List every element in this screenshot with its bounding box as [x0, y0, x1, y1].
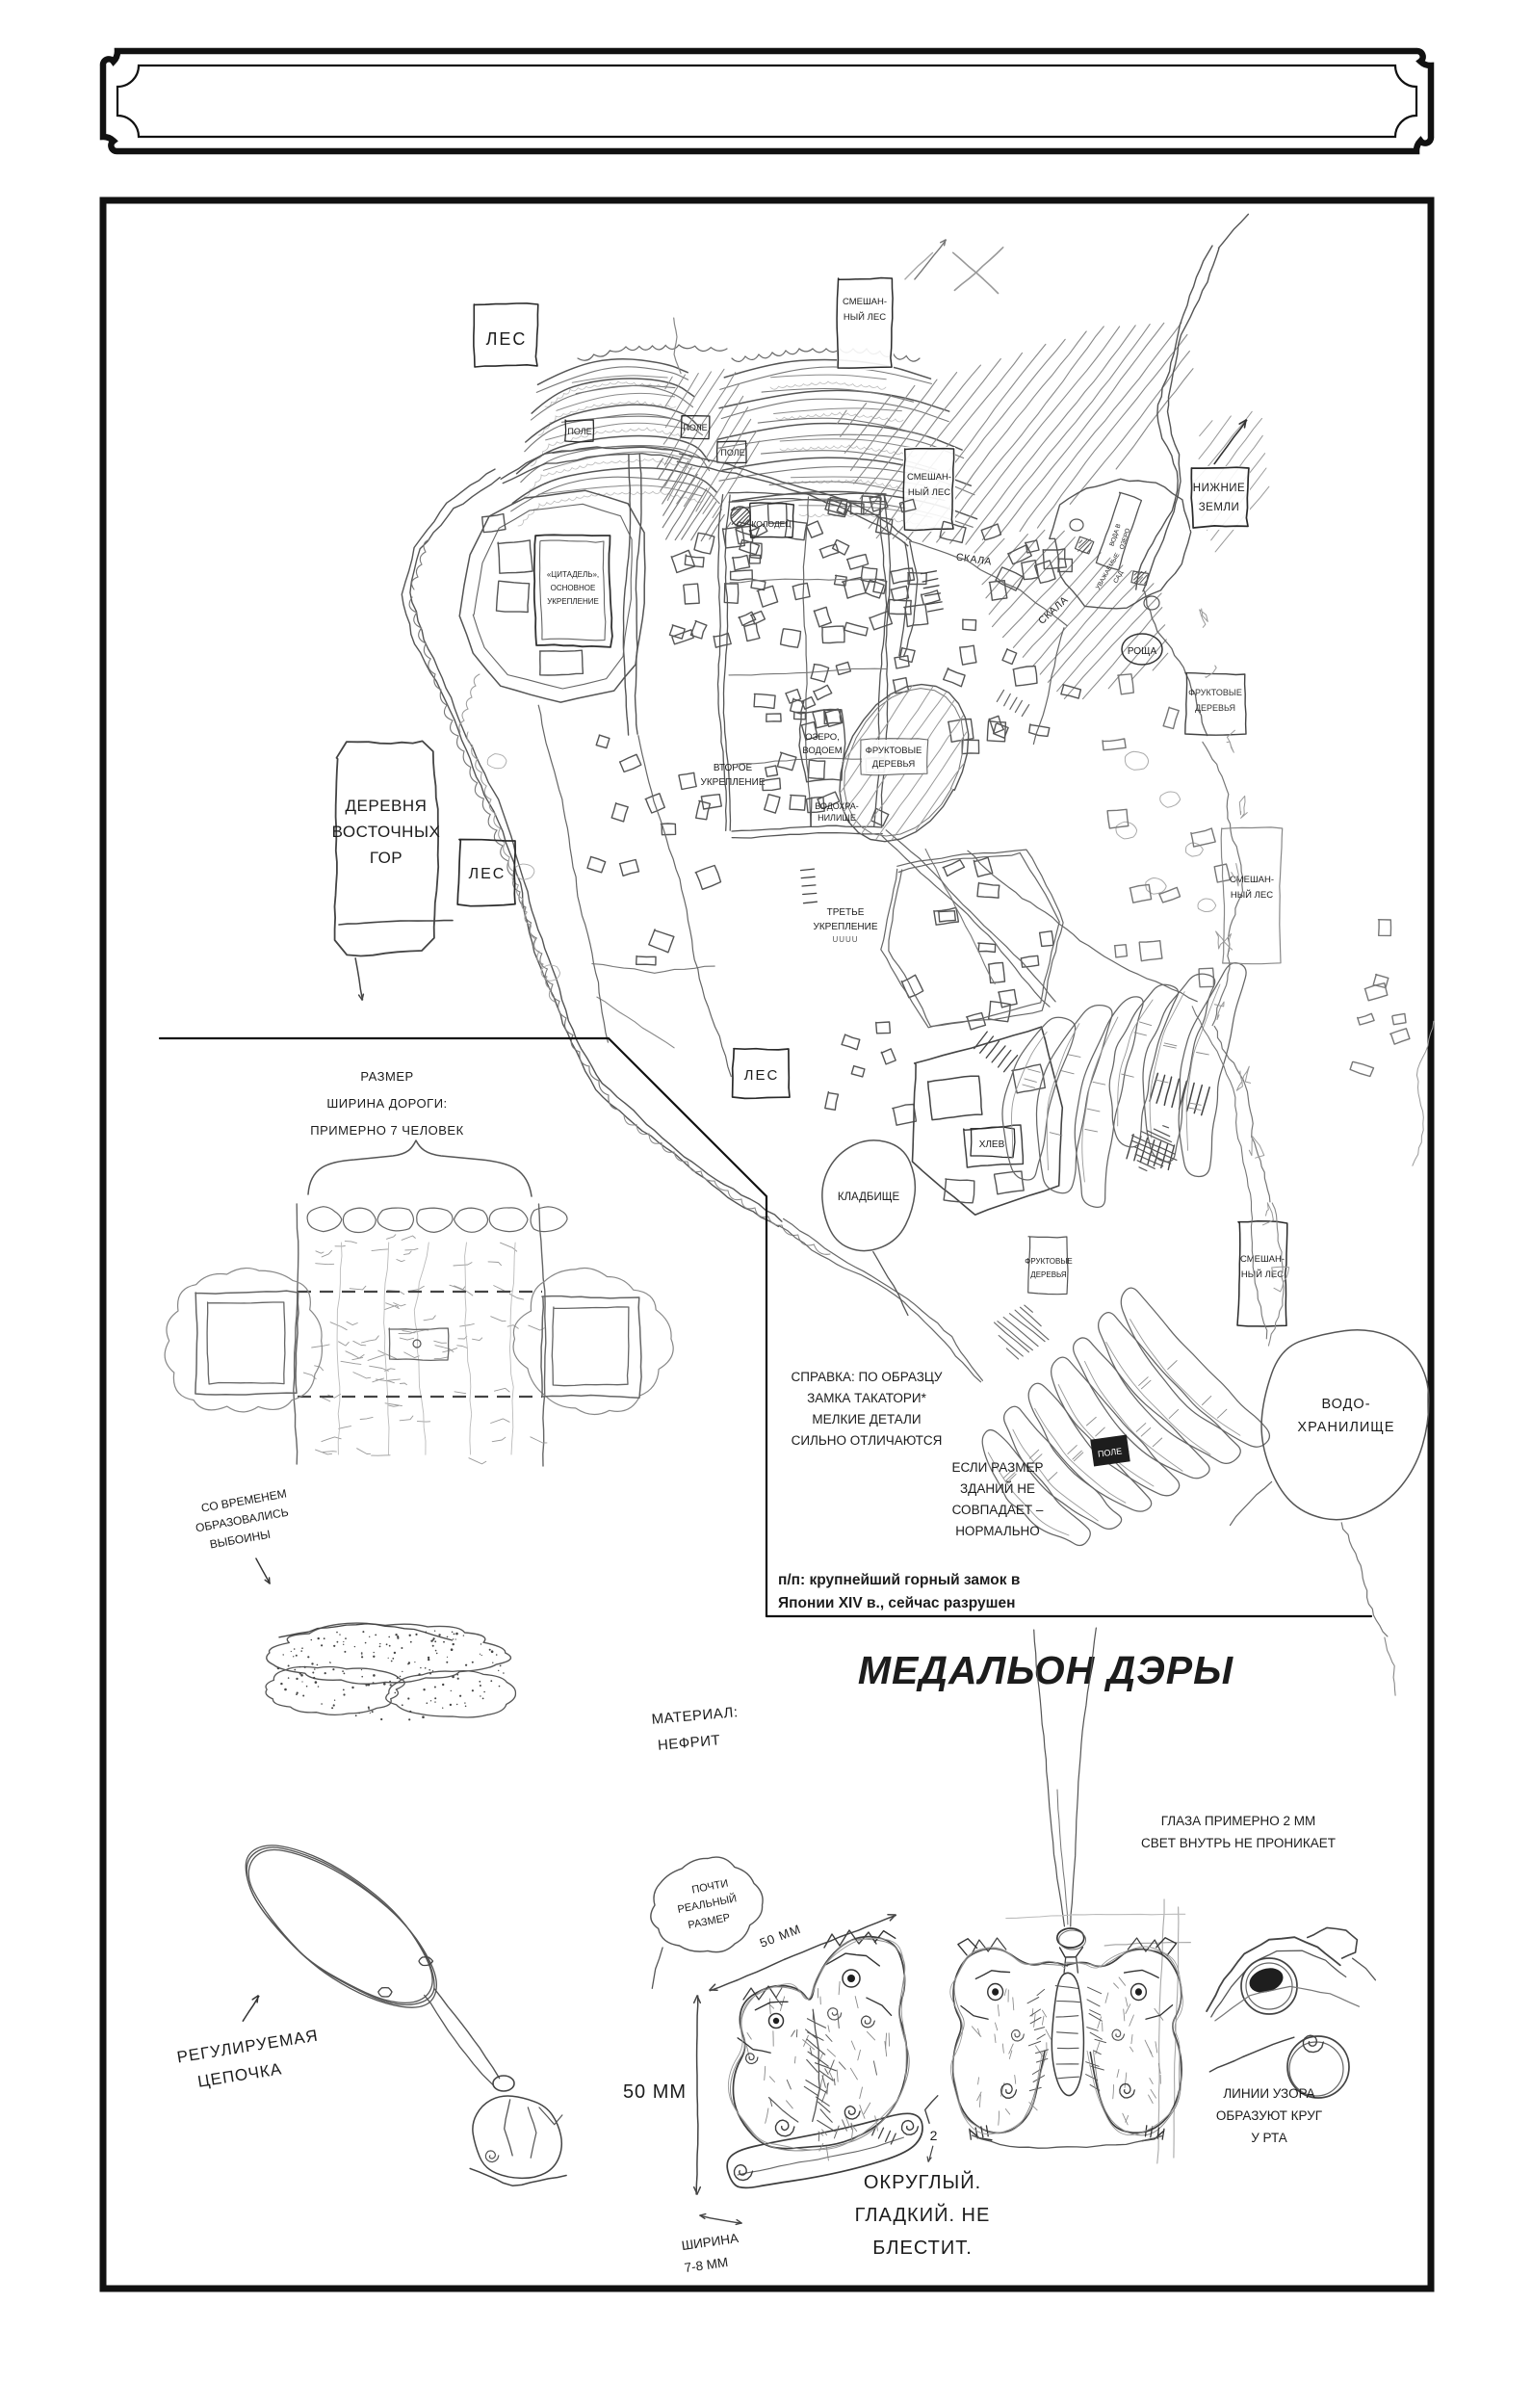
svg-text:КОЛОДЕЦ: КОЛОДЕЦ [751, 519, 792, 529]
svg-text:ШИРИНА ДОРОГИ:: ШИРИНА ДОРОГИ: [326, 1096, 447, 1111]
svg-text:СМЕШАН-: СМЕШАН- [907, 472, 951, 483]
svg-text:ПРИМЕРНО 7 ЧЕЛОВЕК: ПРИМЕРНО 7 ЧЕЛОВЕК [310, 1123, 463, 1138]
svg-text:ЗЕМЛИ: ЗЕМЛИ [1199, 502, 1240, 513]
svg-text:РОЩА: РОЩА [1128, 646, 1157, 657]
svg-text:НИЖНИЕ: НИЖНИЕ [1193, 483, 1245, 494]
svg-text:ДЕРЕВЬЯ: ДЕРЕВЬЯ [872, 759, 916, 770]
svg-text:ЛИНИИ УЗОРА: ЛИНИИ УЗОРА [1223, 2086, 1314, 2101]
svg-text:НЫЙ ЛЕС: НЫЙ ЛЕС [908, 486, 950, 498]
svg-text:ДЕРЕВЬЯ: ДЕРЕВЬЯ [1195, 703, 1235, 713]
svg-text:«ЦИТАДЕЛЬ»,: «ЦИТАДЕЛЬ», [547, 570, 599, 579]
svg-text:ПОЛЕ: ПОЛЕ [567, 427, 591, 436]
svg-text:РАЗМЕР: РАЗМЕР [360, 1069, 413, 1084]
svg-text:ФРУКТОВЫЕ: ФРУКТОВЫЕ [866, 746, 922, 756]
svg-text:ТРЕТЬЕ: ТРЕТЬЕ [827, 907, 865, 918]
svg-text:ГОР: ГОР [370, 849, 402, 867]
svg-text:ФРУКТОВЫЕ: ФРУКТОВЫЕ [1025, 1257, 1073, 1266]
svg-text:ПОЛЕ: ПОЛЕ [720, 448, 744, 458]
svg-text:ХРАНИЛИЩЕ: ХРАНИЛИЩЕ [1297, 1420, 1394, 1435]
svg-text:ДЕРЕВНЯ: ДЕРЕВНЯ [346, 797, 428, 815]
svg-text:ОЗЕРО,: ОЗЕРО, [805, 732, 840, 743]
svg-text:УКРЕПЛЕНИЕ: УКРЕПЛЕНИЕ [813, 922, 877, 932]
svg-text:СПРАВКА: ПО ОБРАЗЦУ: СПРАВКА: ПО ОБРАЗЦУ [792, 1370, 943, 1384]
svg-text:КЛАДБИЩЕ: КЛАДБИЩЕ [838, 1191, 900, 1203]
svg-text:СМЕШАН-: СМЕШАН- [843, 297, 887, 307]
svg-text:СВЕТ ВНУТРЬ НЕ ПРОНИКАЕТ: СВЕТ ВНУТРЬ НЕ ПРОНИКАЕТ [1141, 1836, 1336, 1850]
svg-text:У РТА: У РТА [1251, 2131, 1287, 2145]
svg-text:ХЛЕВ: ХЛЕВ [979, 1139, 1005, 1150]
svg-text:2: 2 [930, 2128, 939, 2143]
svg-text:УКРЕПЛЕНИЕ: УКРЕПЛЕНИЕ [700, 777, 765, 788]
svg-text:МЕДАЛЬОН ДЭРЫ: МЕДАЛЬОН ДЭРЫ [858, 1648, 1233, 1692]
svg-text:50 ММ: 50 ММ [623, 2081, 687, 2103]
svg-text:ВОСТОЧНЫХ: ВОСТОЧНЫХ [332, 823, 441, 841]
svg-text:ВОДОЕМ: ВОДОЕМ [802, 746, 842, 756]
svg-text:НЫЙ ЛЕС: НЫЙ ЛЕС [1241, 1269, 1284, 1280]
svg-text:ГЛАЗА ПРИМЕРНО 2 ММ: ГЛАЗА ПРИМЕРНО 2 ММ [1161, 1814, 1316, 1828]
svg-text:БЛЕСТИТ.: БЛЕСТИТ. [872, 2238, 973, 2259]
svg-text:СМЕШАН-: СМЕШАН- [1240, 1254, 1285, 1265]
svg-text:ЛЕС: ЛЕС [469, 866, 506, 882]
svg-text:ОСНОВНОЕ: ОСНОВНОЕ [551, 584, 596, 592]
svg-text:УКРЕПЛЕНИЕ: УКРЕПЛЕНИЕ [547, 597, 599, 606]
svg-text:UUUU: UUUU [832, 935, 858, 944]
svg-text:ЗДАНИЙ НЕ: ЗДАНИЙ НЕ [960, 1481, 1035, 1496]
svg-text:Японии XIV в., сейчас разрушен: Японии XIV в., сейчас разрушен [778, 1595, 1016, 1611]
svg-text:ЗАМКА ТАКАТОРИ*: ЗАМКА ТАКАТОРИ* [807, 1391, 926, 1405]
svg-text:п/п: крупнейший горный замок в: п/п: крупнейший горный замок в [778, 1572, 1020, 1588]
svg-text:ДЕРЕВЬЯ: ДЕРЕВЬЯ [1030, 1270, 1067, 1279]
svg-text:НИЛИЩЕ: НИЛИЩЕ [818, 813, 856, 823]
svg-text:ЕСЛИ РАЗМЕР: ЕСЛИ РАЗМЕР [952, 1460, 1044, 1475]
svg-text:ВОДО-: ВОДО- [1321, 1397, 1370, 1412]
svg-text:МЕЛКИЕ ДЕТАЛИ: МЕЛКИЕ ДЕТАЛИ [812, 1412, 921, 1426]
svg-text:НЫЙ ЛЕС: НЫЙ ЛЕС [844, 311, 886, 323]
svg-text:ЛЕС: ЛЕС [744, 1067, 780, 1084]
svg-text:ОБРАЗУЮТ КРУГ: ОБРАЗУЮТ КРУГ [1216, 2108, 1323, 2123]
svg-text:ГЛАДКИЙ. НЕ: ГЛАДКИЙ. НЕ [855, 2203, 991, 2226]
svg-text:ВОДОХРА-: ВОДОХРА- [815, 801, 859, 811]
svg-text:ЛЕС: ЛЕС [486, 329, 528, 349]
svg-text:ОКРУГЛЫЙ.: ОКРУГЛЫЙ. [864, 2170, 981, 2193]
svg-text:НЫЙ ЛЕС: НЫЙ ЛЕС [1231, 889, 1273, 901]
svg-text:ФРУКТОВЫЕ: ФРУКТОВЫЕ [1188, 688, 1242, 697]
svg-text:СИЛЬНО ОТЛИЧАЮТСЯ: СИЛЬНО ОТЛИЧАЮТСЯ [792, 1433, 943, 1448]
svg-text:ПОЛЕ: ПОЛЕ [683, 423, 707, 432]
svg-text:СОВПАДАЕТ –: СОВПАДАЕТ – [952, 1503, 1044, 1517]
svg-text:НОРМАЛЬНО: НОРМАЛЬНО [955, 1524, 1040, 1538]
